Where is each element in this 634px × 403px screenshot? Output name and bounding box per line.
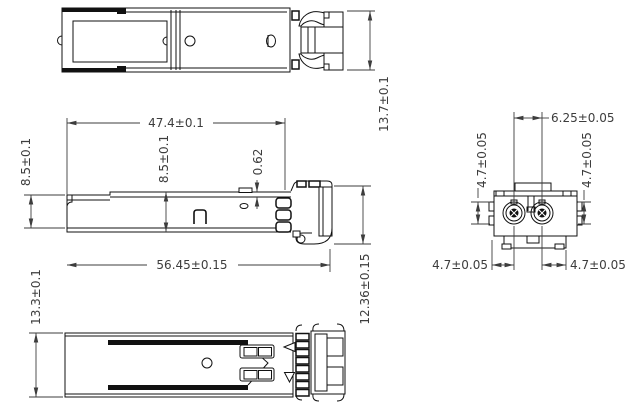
dim-top-wall-label: 0.62	[251, 149, 265, 176]
dim-front-height-label: 8.5±0.1	[19, 138, 33, 186]
latch-boss	[239, 188, 252, 193]
bottom-view	[65, 324, 345, 401]
dim-body-length-label: 47.4±0.1	[148, 116, 204, 130]
top-view-bottom-rail	[62, 68, 120, 72]
dim-overall-length-label: 56.45±0.15	[156, 258, 227, 272]
sfp-transceiver-mechanical-drawing: 13.7±0.1 47.4±0.1	[0, 0, 634, 403]
front-bottom-section	[502, 236, 566, 249]
emi-fingers-bottom	[296, 334, 309, 397]
label-window-upper	[240, 345, 274, 358]
bottom-rail-bottom	[108, 385, 248, 390]
label-area	[73, 21, 167, 62]
dim-port-offset-right-label: 4.7±0.05	[570, 258, 626, 272]
label-window-lower	[240, 368, 274, 381]
dim-body-height-label: 8.5±0.1	[157, 135, 171, 183]
dim-port-offset-left-label: 4.7±0.05	[432, 258, 488, 272]
emi-fingers-side	[276, 198, 291, 232]
dim-bottom-view-width-label: 13.3±0.1	[29, 269, 43, 325]
dim-port-pitch-label: 6.25±0.05	[551, 111, 615, 125]
engineering-drawing-canvas: 13.7±0.1 47.4±0.1	[0, 0, 634, 403]
front-top-tab	[515, 183, 551, 191]
top-view-top-rail	[62, 8, 120, 12]
dim-top-view-width-label: 13.7±0.1	[377, 76, 391, 132]
dim-port-height-right-label: 4.7±0.05	[580, 132, 594, 188]
dim-port-height-left-label: 4.7±0.05	[475, 132, 489, 188]
bottom-rail-top	[108, 340, 248, 345]
dim-rear-height-label: 12.36±0.15	[358, 253, 372, 324]
